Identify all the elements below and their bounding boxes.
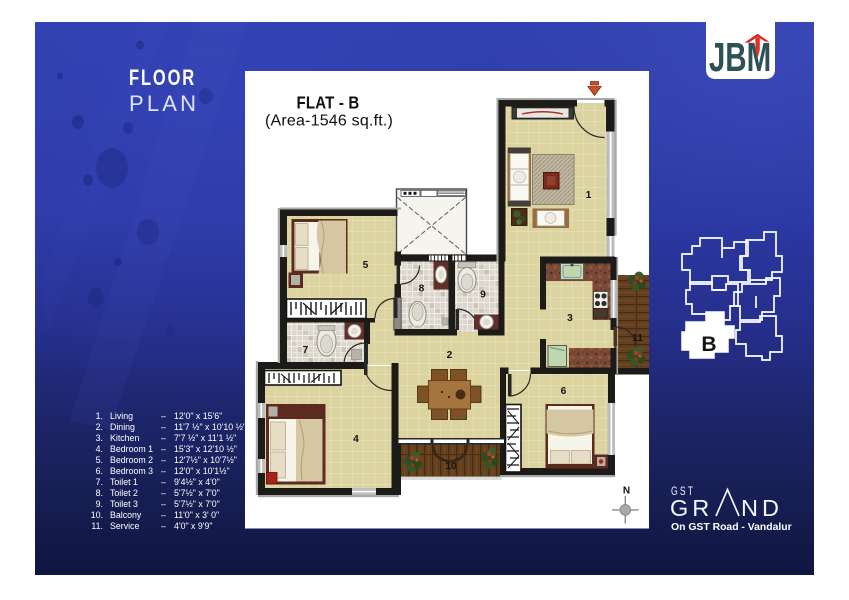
svg-text:PLAN: PLAN [129, 91, 199, 116]
svg-text:5.: 5. [96, 455, 103, 465]
svg-text:7.: 7. [96, 477, 103, 487]
svg-text:7: 7 [303, 345, 309, 356]
svg-text:11.: 11. [91, 521, 103, 531]
svg-text:JBM: JBM [709, 34, 771, 80]
svg-text:–: – [161, 521, 166, 531]
svg-text:2.: 2. [96, 422, 103, 432]
svg-text:–: – [161, 433, 166, 443]
svg-text:GR: GR [670, 495, 713, 521]
svg-text:6: 6 [561, 386, 567, 397]
svg-text:FLAT - B: FLAT - B [297, 93, 360, 112]
svg-text:11'7 ½" x 10'10 ½": 11'7 ½" x 10'10 ½" [174, 422, 246, 432]
svg-text:–: – [161, 455, 166, 465]
svg-text:ND: ND [741, 495, 783, 521]
svg-text:–: – [161, 466, 166, 476]
svg-text:Balcony: Balcony [110, 510, 142, 520]
svg-text:1: 1 [586, 190, 592, 201]
svg-text:On GST Road - Vandalur: On GST Road - Vandalur [671, 522, 792, 533]
svg-text:2: 2 [447, 350, 453, 361]
svg-text:5'7½" x 7'0": 5'7½" x 7'0" [174, 488, 220, 498]
svg-text:12'0" x 15'6": 12'0" x 15'6" [174, 411, 222, 421]
svg-text:(Area-1546 sq.ft.): (Area-1546 sq.ft.) [265, 113, 393, 130]
svg-text:11: 11 [632, 333, 643, 344]
svg-text:10: 10 [445, 461, 457, 472]
svg-text:3.: 3. [96, 433, 103, 443]
svg-text:1.: 1. [96, 411, 103, 421]
svg-text:N: N [623, 486, 630, 497]
svg-text:FLOOR: FLOOR [129, 66, 196, 91]
svg-text:5: 5 [363, 260, 369, 271]
svg-text:Bedroom 1: Bedroom 1 [110, 444, 153, 454]
svg-text:Toilet 1: Toilet 1 [110, 477, 138, 487]
svg-text:Kitchen: Kitchen [110, 433, 139, 443]
svg-text:Living: Living [110, 411, 133, 421]
svg-text:–: – [161, 510, 166, 520]
svg-text:11'0" x 3' 0": 11'0" x 3' 0" [174, 510, 219, 520]
svg-text:12'0" x 10'1½": 12'0" x 10'1½" [174, 466, 230, 476]
svg-text:Bedroom 3: Bedroom 3 [110, 466, 153, 476]
svg-text:8.: 8. [96, 488, 103, 498]
svg-text:Toilet 3: Toilet 3 [110, 499, 138, 509]
svg-text:Bedroom 2: Bedroom 2 [110, 455, 153, 465]
svg-text:9: 9 [480, 290, 486, 301]
svg-text:Dining: Dining [110, 422, 135, 432]
svg-text:–: – [161, 444, 166, 454]
svg-text:9.: 9. [96, 499, 103, 509]
svg-text:12'7½" x 10'7½": 12'7½" x 10'7½" [174, 455, 237, 465]
svg-text:6.: 6. [96, 466, 103, 476]
svg-text:B: B [701, 333, 716, 356]
svg-text:Toilet 2: Toilet 2 [110, 488, 138, 498]
svg-text:8: 8 [419, 284, 425, 295]
svg-text:9'4½" x 4'0": 9'4½" x 4'0" [174, 477, 220, 487]
svg-text:–: – [161, 411, 166, 421]
svg-text:5'7½" x 7'0": 5'7½" x 7'0" [174, 499, 220, 509]
svg-text:–: – [161, 499, 166, 509]
svg-text:–: – [161, 422, 166, 432]
svg-text:–: – [161, 488, 166, 498]
svg-text:7'7 ½" x 11'1 ½": 7'7 ½" x 11'1 ½" [174, 433, 236, 443]
svg-text:–: – [161, 477, 166, 487]
svg-text:10.: 10. [91, 510, 103, 520]
svg-text:4: 4 [353, 434, 359, 445]
svg-text:Service: Service [110, 521, 139, 531]
svg-text:4'0" x 9'9": 4'0" x 9'9" [174, 521, 212, 531]
svg-text:3: 3 [567, 313, 573, 324]
svg-text:15'3" x 12'10 ½": 15'3" x 12'10 ½" [174, 444, 237, 454]
svg-text:4.: 4. [96, 444, 103, 454]
